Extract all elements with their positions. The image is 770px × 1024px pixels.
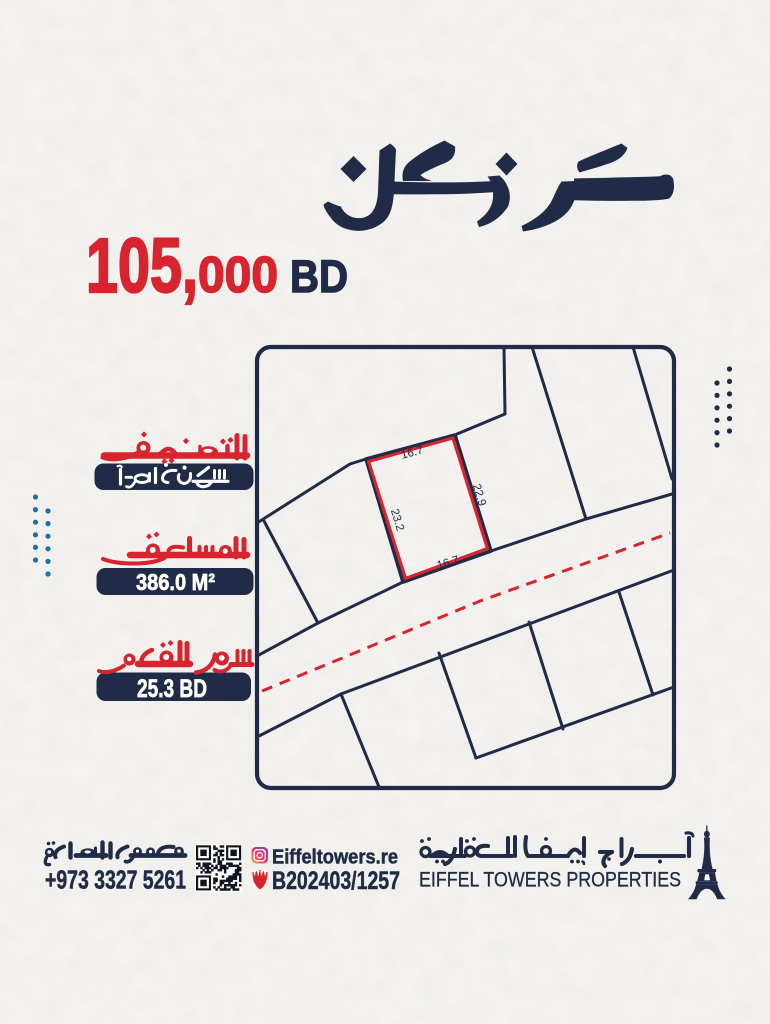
svg-text:BD: BD [290, 251, 348, 302]
svg-text:25.3 BD: 25.3 BD [137, 675, 207, 703]
svg-text:EIFFEL TOWERS PROPERTIES: EIFFEL TOWERS PROPERTIES [419, 868, 681, 892]
svg-text:+973 3327 5261: +973 3327 5261 [45, 867, 186, 895]
svg-text:105,: 105, [86, 223, 198, 309]
svg-text:Eiffeltowers.re: Eiffeltowers.re [272, 847, 398, 869]
svg-text:000: 000 [198, 246, 278, 303]
svg-text:B202403/1257: B202403/1257 [272, 867, 400, 895]
svg-text:386.0 M²: 386.0 M² [136, 569, 215, 595]
